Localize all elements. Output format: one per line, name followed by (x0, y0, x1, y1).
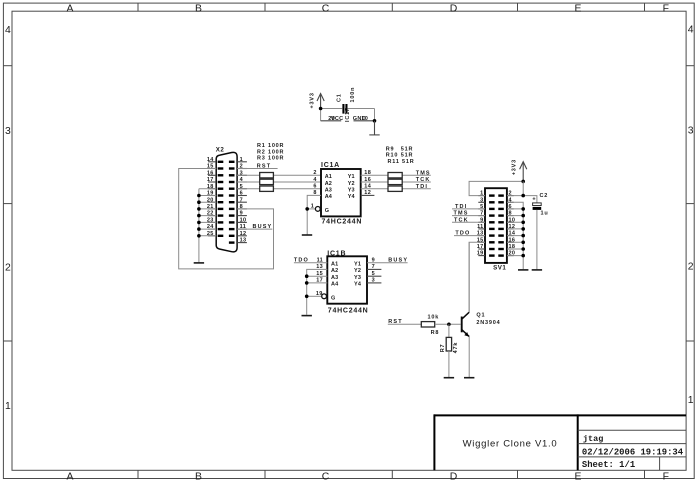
svg-text:IC1A: IC1A (321, 162, 340, 169)
svg-text:A1: A1 (331, 262, 338, 268)
svg-text:B: B (195, 471, 202, 482)
svg-text:Y2: Y2 (348, 181, 355, 187)
svg-text:100n: 100n (350, 87, 356, 103)
svg-text:jtag: jtag (583, 434, 603, 444)
svg-text:Y4: Y4 (354, 282, 362, 288)
svg-text:2: 2 (313, 170, 316, 176)
svg-text:12: 12 (240, 231, 247, 237)
svg-text:47k: 47k (453, 342, 459, 354)
svg-text:2N3904: 2N3904 (476, 320, 500, 326)
svg-text:F: F (663, 471, 669, 482)
svg-text:R2 100R: R2 100R (257, 149, 284, 155)
svg-text:TDO: TDO (294, 257, 309, 263)
svg-text:X2: X2 (216, 147, 225, 154)
svg-text:R1 100R: R1 100R (257, 143, 284, 149)
svg-text:D: D (450, 3, 458, 14)
svg-text:+3V3: +3V3 (511, 159, 517, 175)
svg-text:TMS: TMS (454, 211, 469, 217)
svg-text:A3: A3 (325, 188, 332, 194)
svg-text:4: 4 (5, 25, 11, 36)
svg-text:51R: 51R (401, 153, 414, 159)
svg-text:G: G (325, 208, 329, 214)
svg-text:A2: A2 (325, 181, 332, 187)
svg-text:B: B (195, 3, 202, 14)
svg-text:Y3: Y3 (348, 188, 355, 194)
svg-text:2: 2 (688, 262, 694, 273)
svg-text:3: 3 (688, 126, 694, 137)
svg-text:SV1: SV1 (493, 265, 506, 272)
svg-text:16: 16 (207, 170, 214, 176)
svg-text:+: + (532, 197, 536, 203)
svg-text:E: E (575, 471, 582, 482)
svg-text:E: E (575, 3, 582, 14)
svg-text:4: 4 (688, 25, 694, 36)
svg-text:IC1P: IC1P (345, 107, 351, 122)
svg-text:A2: A2 (331, 268, 338, 274)
svg-text:19: 19 (477, 251, 484, 257)
svg-text:C1: C1 (337, 93, 343, 102)
svg-text:10k: 10k (428, 315, 440, 321)
svg-text:BUSY: BUSY (388, 258, 408, 264)
svg-text:Y1: Y1 (354, 262, 361, 268)
svg-text:6: 6 (313, 184, 316, 190)
svg-text:F: F (663, 3, 669, 14)
svg-text:R11 51R: R11 51R (388, 159, 415, 165)
svg-text:Y4: Y4 (348, 194, 356, 200)
svg-text:C: C (322, 3, 330, 14)
svg-text:A: A (67, 3, 74, 14)
svg-text:10: 10 (240, 218, 247, 224)
svg-text:1: 1 (5, 401, 11, 412)
svg-text:BUSY: BUSY (253, 224, 273, 230)
svg-text:TCK: TCK (416, 177, 431, 183)
svg-text:TDI: TDI (455, 204, 467, 210)
svg-text:C: C (322, 471, 330, 482)
svg-text:11: 11 (477, 224, 484, 230)
svg-text:R3 100R: R3 100R (257, 156, 284, 162)
svg-text:4: 4 (313, 177, 317, 183)
svg-text:10: 10 (361, 116, 368, 122)
svg-text:R10: R10 (386, 153, 399, 159)
svg-text:2: 2 (5, 262, 11, 273)
svg-text:R8: R8 (431, 330, 440, 336)
svg-text:17: 17 (477, 244, 484, 250)
svg-text:Y2: Y2 (354, 268, 361, 274)
svg-text:14: 14 (207, 157, 214, 163)
svg-text:+3V3: +3V3 (310, 92, 316, 108)
svg-text:RST: RST (388, 319, 402, 325)
svg-text:TDI: TDI (416, 184, 428, 190)
svg-text:1: 1 (240, 157, 243, 163)
svg-text:G: G (331, 295, 335, 301)
svg-text:C2: C2 (540, 193, 549, 199)
svg-text:R9: R9 (386, 146, 395, 152)
svg-text:02/12/2006 19:19:34: 02/12/2006 19:19:34 (582, 447, 684, 457)
svg-text:Sheet: 1/1: Sheet: 1/1 (582, 460, 635, 470)
svg-text:D: D (450, 471, 458, 482)
svg-text:Q1: Q1 (476, 313, 485, 319)
svg-text:Y3: Y3 (354, 275, 361, 281)
svg-text:6: 6 (240, 191, 243, 197)
svg-text:74HC244N: 74HC244N (322, 219, 363, 226)
svg-text:A3: A3 (331, 275, 338, 281)
svg-text:R7: R7 (440, 344, 446, 353)
svg-text:TCK: TCK (454, 217, 469, 223)
svg-text:3: 3 (480, 197, 483, 203)
svg-text:Y1: Y1 (348, 174, 355, 180)
svg-text:13: 13 (240, 238, 247, 244)
svg-text:A: A (67, 471, 74, 482)
svg-text:17: 17 (207, 177, 214, 183)
svg-text:1u: 1u (541, 211, 549, 217)
svg-text:3: 3 (5, 126, 11, 137)
svg-text:74HC244N: 74HC244N (328, 307, 369, 314)
svg-text:RST: RST (257, 163, 271, 169)
svg-text:A1: A1 (325, 174, 332, 180)
svg-text:TDO: TDO (455, 231, 470, 237)
svg-text:VCC: VCC (331, 116, 344, 122)
svg-text:7: 7 (240, 197, 243, 203)
svg-text:1: 1 (688, 395, 694, 406)
svg-text:A4: A4 (325, 194, 333, 200)
svg-text:51R: 51R (401, 146, 414, 152)
svg-text:Wiggler Clone V1.0: Wiggler Clone V1.0 (463, 438, 558, 449)
svg-text:9: 9 (240, 211, 243, 217)
svg-text:A4: A4 (331, 282, 339, 288)
svg-text:TMS: TMS (416, 170, 431, 176)
